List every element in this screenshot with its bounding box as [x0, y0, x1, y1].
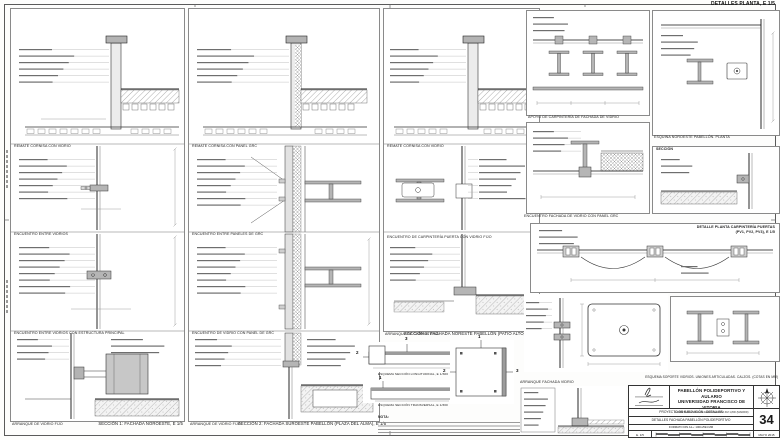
col1-subcaption-remate: REMATE CORNISA CON VIDRIO — [14, 145, 71, 149]
arranque-box — [520, 386, 626, 434]
puertas-caption-line2: (PV1, PV2, PV3), E 1/5 — [640, 231, 775, 235]
date-cell: MAYO 2015 — [753, 430, 779, 437]
esquina-noroeste-drawing — [653, 11, 779, 135]
key-longitudinal-caption: ESQUEMA SECCIÓN LONGITUDINAL, E 1/300 — [363, 373, 463, 376]
seccion-label: SECCIÓN — [656, 148, 673, 152]
arranque-drawing — [520, 386, 626, 434]
section3-drawing — [384, 9, 539, 331]
section1-caption: SECCIÓN 1: FACHADA NOROESTE, E 1/5 — [80, 422, 183, 427]
note-label: NOTA: — [378, 416, 389, 420]
note-text-lines — [378, 422, 536, 435]
scale-bar — [652, 431, 754, 438]
signatures-cell — [629, 386, 669, 408]
scalebar-cell — [651, 430, 753, 437]
encuentro-grc-caption: ENCUENTRO FACHADA DE VIDRIO CON PANEL GR… — [524, 215, 618, 219]
key-transversal-diagram — [363, 380, 463, 403]
scale-text: E. 1/5 — [629, 433, 651, 437]
signature-icon — [629, 386, 669, 408]
encuentro-grc-drawing — [527, 123, 649, 213]
col2-bottom-label: ARRANQUE DE VIDRIO FIJO — [190, 423, 241, 427]
section3-caption: SECCIÓN 3: FACHADA NORESTE PABELLÓN (PAT… — [400, 332, 538, 337]
soporte-vidrios-plan-drawing — [671, 297, 779, 361]
seccion-drawing — [653, 147, 779, 213]
section-marker-1: 1 — [379, 375, 382, 380]
encuentro-grc-box — [526, 122, 650, 214]
arranque-caption: ARRANQUE FACHADA VIDRIO — [520, 381, 574, 385]
plan-marker-1: 1 — [478, 334, 481, 339]
phase-row: PROYECTO DE EJECUCIÓN - DETALLES — [629, 408, 753, 416]
key-transversal-caption: ESQUEMA SECCIÓN TRANSVERSAL, E 1/300 — [363, 404, 463, 407]
section2-drawing — [189, 9, 379, 421]
section-marker-3: 3 — [405, 336, 408, 341]
soporte-vidrios-plan-box — [670, 296, 780, 362]
project-title-cell: PABELLÓN POLIDEPORTIVO Y AULARIO UNIVERS… — [669, 386, 753, 408]
section2-caption: SECCIÓN 2: FACHADA SUROESTE PABELLÓN (PL… — [238, 422, 378, 427]
col1-bottom-label: ARRANQUE DE VIDRIO FIJO — [12, 423, 63, 427]
margin-label — [6, 280, 8, 314]
north-arrow-icon — [754, 386, 780, 408]
section1-strip — [10, 8, 185, 422]
project-title-line1: PABELLÓN POLIDEPORTIVO Y AULARIO — [670, 388, 753, 399]
section1-drawing — [11, 9, 184, 421]
esquina-caption: ESQUINA NOROESTE PABELLÓN. PLANTA — [654, 136, 730, 140]
apoyo-carpinteria-box — [526, 10, 650, 116]
margin-label — [6, 150, 8, 190]
sheet-title-row: DETALLES FACHADA PABELLÓN POLIDEPORTIVO — [629, 416, 753, 424]
col1-subcaption-encuentro: ENCUENTRO ENTRE VIDRIOS — [14, 233, 68, 237]
section-marker-2: 2 — [356, 350, 359, 355]
seccion-box — [652, 146, 780, 214]
soporte-vidrios-drawing — [524, 294, 668, 372]
date-text: MAYO 2015 — [754, 433, 779, 437]
apoyo-caption: APOYO DE CARPINTERÍA DE FACHADA DE VIDRI… — [528, 116, 619, 120]
key-longitudinal-diagram — [363, 342, 463, 372]
plan-marker-2: 2 — [443, 368, 446, 373]
phase-text: PROYECTO DE EJECUCIÓN - DETALLES — [629, 411, 753, 414]
scale-cell: E. 1/5 — [629, 430, 651, 437]
section2-strip — [188, 8, 380, 422]
compass-cell — [753, 386, 779, 408]
esquina-noroeste-box — [652, 10, 780, 136]
plan-details-title: DETALLES PLANTA, E 1/5 — [595, 2, 775, 8]
col2-subcaption-vidrio: ENCUENTRO DE VIDRIO CON PANEL DE GRC — [192, 332, 274, 336]
title-block: PABELLÓN POLIDEPORTIVO Y AULARIO UNIVERS… — [628, 385, 780, 438]
section3-strip — [383, 8, 540, 332]
drawing-sheet: REMATE CORNISA CON VIDRIO ENCUENTRO ENTR… — [0, 0, 780, 440]
sheet-title-text: DETALLES FACHADA PABELLÓN POLIDEPORTIVO — [629, 419, 753, 422]
key-plan-diagram — [450, 340, 514, 404]
col3-subcaption-remate: REMATE CORNISA CON VIDRIO — [387, 145, 444, 149]
sheet-number: 34 — [754, 412, 779, 427]
plan-marker-3: 3 — [516, 368, 519, 373]
col1-subcaption-estructura: ENCUENTRO ENTRE VIDRIOS CON ESTRUCTURA P… — [14, 332, 125, 336]
sheet-number-cell: 34 — [753, 408, 779, 430]
col3-subcaption-puerta: ENCUENTRO DE CARPINTERÍA PUERTA CON VIDR… — [387, 236, 492, 240]
format-text: FORMATO DIN A1+: 1001x594 MM — [629, 426, 753, 429]
col2-subcaption-paneles: ENCUENTRO ENTRE PANELES DE GRC — [192, 233, 263, 237]
col2-subcaption-remate: REMATE CORNISA CON PANEL GRC — [192, 145, 257, 149]
soporte-caption: ESQUEMA SOPORTE VIDRIOS. UNIONES ARTICUL… — [560, 376, 778, 380]
apoyo-carpinteria-drawing — [527, 11, 649, 115]
